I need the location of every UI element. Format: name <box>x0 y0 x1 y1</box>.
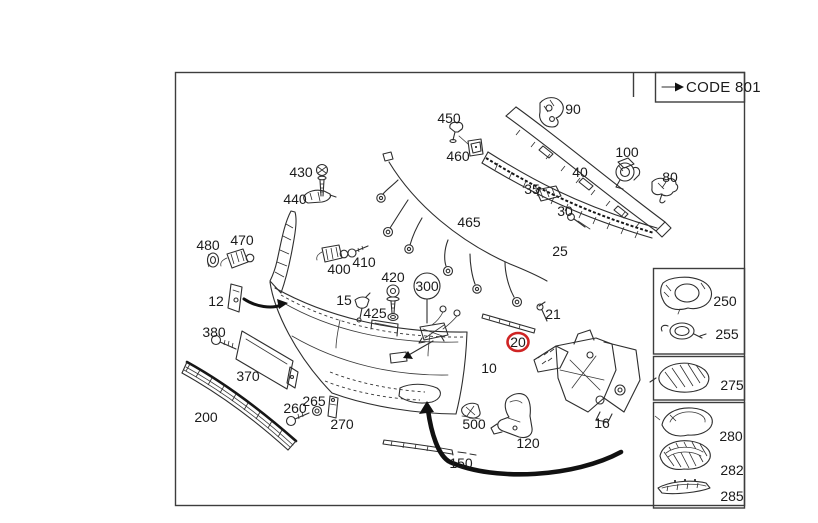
callout-150[interactable]: 150 <box>449 455 473 471</box>
parts-catalog-canvas: CODE 801 <box>0 0 818 523</box>
part-100-drawing <box>616 158 640 189</box>
callout-460[interactable]: 460 <box>446 148 470 164</box>
callout-400[interactable]: 400 <box>327 261 351 277</box>
panel-callout-282[interactable]: 282 <box>720 462 744 478</box>
code-label: CODE 801 <box>686 79 761 96</box>
panel-part-255-drawing <box>661 323 706 339</box>
callout-80[interactable]: 80 <box>662 169 678 185</box>
callout-265[interactable]: 265 <box>302 393 326 409</box>
part-bracket-12-drawing <box>228 284 288 312</box>
callout-300[interactable]: 300 <box>415 278 439 294</box>
part-trim-strip-20-drawing <box>482 314 535 333</box>
callout-470[interactable]: 470 <box>230 232 254 248</box>
callout-420[interactable]: 420 <box>381 269 405 285</box>
diagram-frame <box>176 73 745 506</box>
callout-16[interactable]: 16 <box>594 415 610 431</box>
callout-370[interactable]: 370 <box>236 368 260 384</box>
panel-part-275-drawing <box>650 363 709 392</box>
part-470-drawing <box>221 249 254 268</box>
panel-part-280-drawing <box>655 408 712 436</box>
part-400-drawing <box>317 245 348 262</box>
callout-480[interactable]: 480 <box>196 237 220 253</box>
callout-12[interactable]: 12 <box>208 293 224 309</box>
panel-callout-255[interactable]: 255 <box>715 326 739 342</box>
part-425-drawing <box>388 314 398 321</box>
part-side-bracket-16-drawing <box>534 330 640 422</box>
callout-430[interactable]: 430 <box>289 164 313 180</box>
callout-465[interactable]: 465 <box>457 214 481 230</box>
callout-200[interactable]: 200 <box>194 409 218 425</box>
callout-90[interactable]: 90 <box>565 101 581 117</box>
callout-40[interactable]: 40 <box>572 164 588 180</box>
balloon-callout-300[interactable]: 300 <box>414 273 440 299</box>
callout-20[interactable]: 20 <box>510 334 526 350</box>
callout-270[interactable]: 270 <box>330 416 354 432</box>
part-430-drawing <box>317 165 328 197</box>
panel-part-250-drawing <box>661 277 712 314</box>
part-440-drawing <box>304 190 336 203</box>
callout-450[interactable]: 450 <box>437 110 461 126</box>
right-arrow-icon <box>662 83 684 92</box>
part-460-drawing <box>468 139 483 156</box>
bumper-parts-diagram: CODE 801 <box>0 0 818 523</box>
panel-callout-250[interactable]: 250 <box>713 293 737 309</box>
part-480-drawing <box>208 253 219 267</box>
callout-120[interactable]: 120 <box>516 435 540 451</box>
callout-25[interactable]: 25 <box>552 243 568 259</box>
part-camera-bracket-drawing <box>403 299 460 359</box>
code-box: CODE 801 <box>656 73 761 103</box>
panel-part-285-drawing <box>658 479 710 494</box>
panel-callout-285[interactable]: 285 <box>720 488 744 504</box>
part-90-drawing <box>540 98 564 127</box>
part-420-drawing <box>387 285 399 313</box>
panel-labels: 250 255 275 280 282 285 <box>713 293 744 504</box>
part-270-drawing <box>328 396 338 418</box>
callout-425[interactable]: 425 <box>363 305 387 321</box>
callout-15[interactable]: 15 <box>336 292 352 308</box>
callout-410[interactable]: 410 <box>352 254 376 270</box>
callout-35[interactable]: 35 <box>524 181 540 197</box>
panel-callout-275[interactable]: 275 <box>720 377 744 393</box>
callout-10[interactable]: 10 <box>481 360 497 376</box>
panel-callout-280[interactable]: 280 <box>719 428 743 444</box>
callout-440[interactable]: 440 <box>283 191 307 207</box>
part-crossmember-drawing <box>506 107 671 237</box>
highlighted-callout-20[interactable]: 20 <box>508 333 529 351</box>
callout-500[interactable]: 500 <box>462 416 486 432</box>
callout-21[interactable]: 21 <box>545 306 561 322</box>
callout-100[interactable]: 100 <box>615 144 639 160</box>
callout-30[interactable]: 30 <box>557 203 573 219</box>
panel-part-282-drawing <box>660 441 710 470</box>
part-120-drawing <box>491 394 532 438</box>
callout-380[interactable]: 380 <box>202 324 226 340</box>
